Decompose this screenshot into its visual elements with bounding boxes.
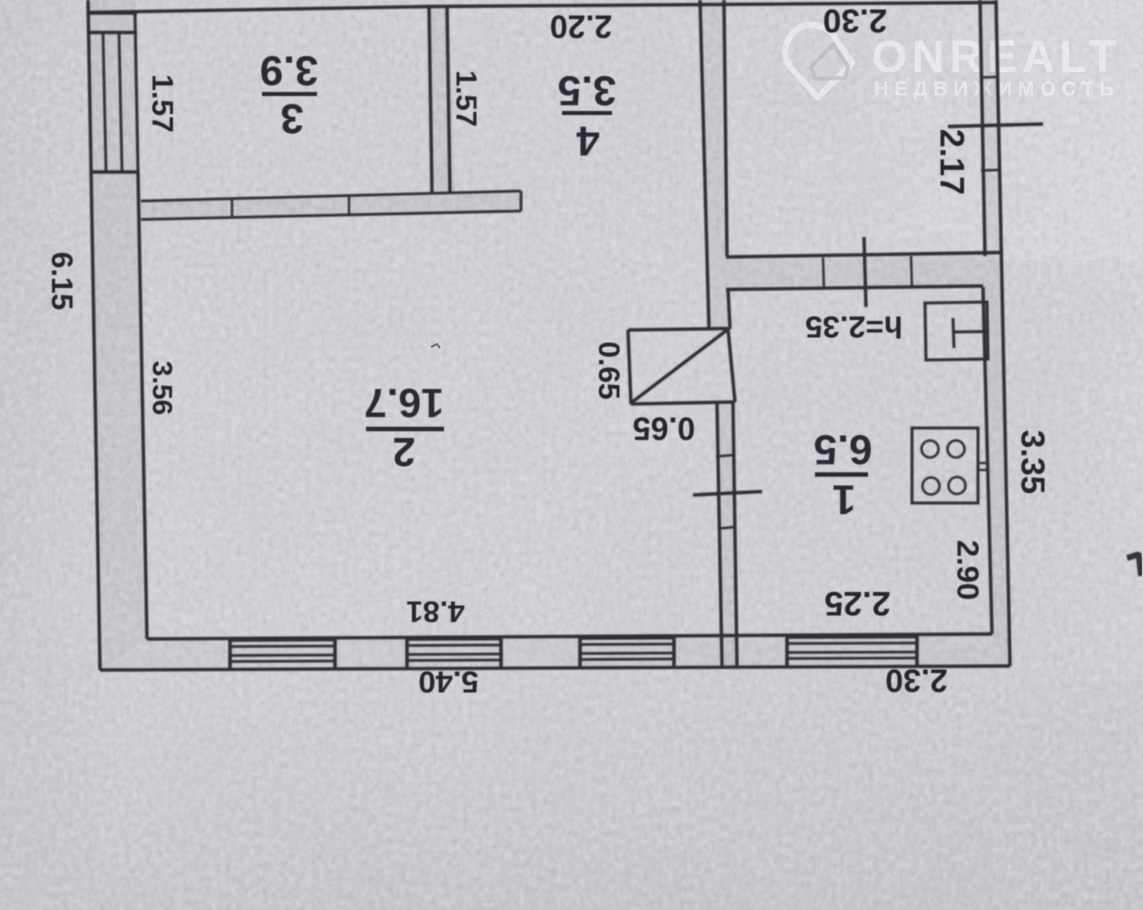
svg-text:3.35: 3.35 <box>1015 430 1052 494</box>
svg-text:2.20: 2.20 <box>550 9 612 45</box>
svg-text:2.30: 2.30 <box>823 3 887 40</box>
svg-text:4: 4 <box>576 118 600 165</box>
svg-text:1.57: 1.57 <box>146 74 179 132</box>
svg-text:0.65: 0.65 <box>592 341 625 399</box>
svg-text:2.25: 2.25 <box>824 584 890 622</box>
svg-text:2.90: 2.90 <box>951 540 986 600</box>
svg-text:4.81: 4.81 <box>406 595 464 628</box>
svg-text:6.5: 6.5 <box>814 427 872 474</box>
svg-text:h=2.35: h=2.35 <box>805 310 902 345</box>
svg-text:2.17: 2.17 <box>933 129 971 195</box>
svg-text:2.30: 2.30 <box>885 663 947 699</box>
svg-text:3.56: 3.56 <box>147 361 178 416</box>
svg-text:1.57: 1.57 <box>450 70 482 126</box>
svg-text:6.15: 6.15 <box>45 252 78 310</box>
svg-text:0.65: 0.65 <box>633 411 695 447</box>
svg-text:2: 2 <box>393 429 416 475</box>
svg-text:3.9: 3.9 <box>260 48 318 95</box>
svg-text:3.5: 3.5 <box>558 68 616 115</box>
svg-text:3: 3 <box>280 96 303 143</box>
svg-text:16.7: 16.7 <box>364 380 444 426</box>
svg-text:5.40: 5.40 <box>418 665 478 700</box>
svg-text:1: 1 <box>832 477 855 524</box>
